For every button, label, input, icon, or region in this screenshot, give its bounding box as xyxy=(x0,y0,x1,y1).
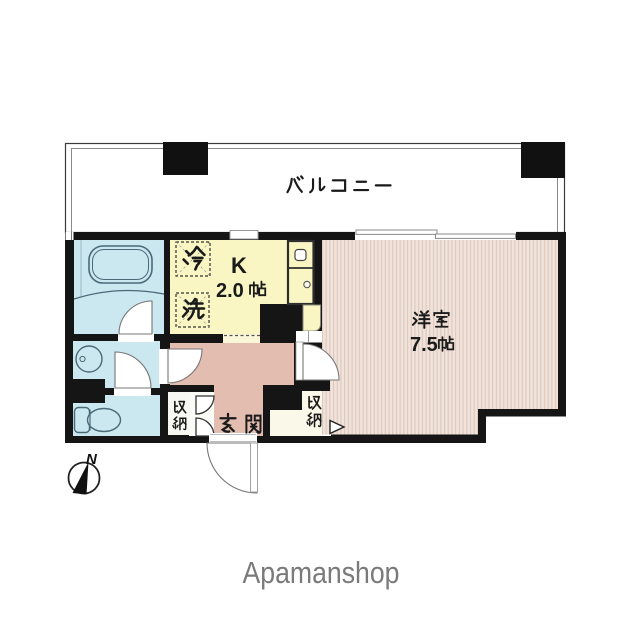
svg-text:K: K xyxy=(231,253,247,278)
svg-text:2.0: 2.0 xyxy=(216,280,244,302)
svg-text:7.5: 7.5 xyxy=(410,334,438,356)
svg-text:Apamanshop: Apamanshop xyxy=(243,555,400,590)
svg-text:N: N xyxy=(86,451,98,468)
